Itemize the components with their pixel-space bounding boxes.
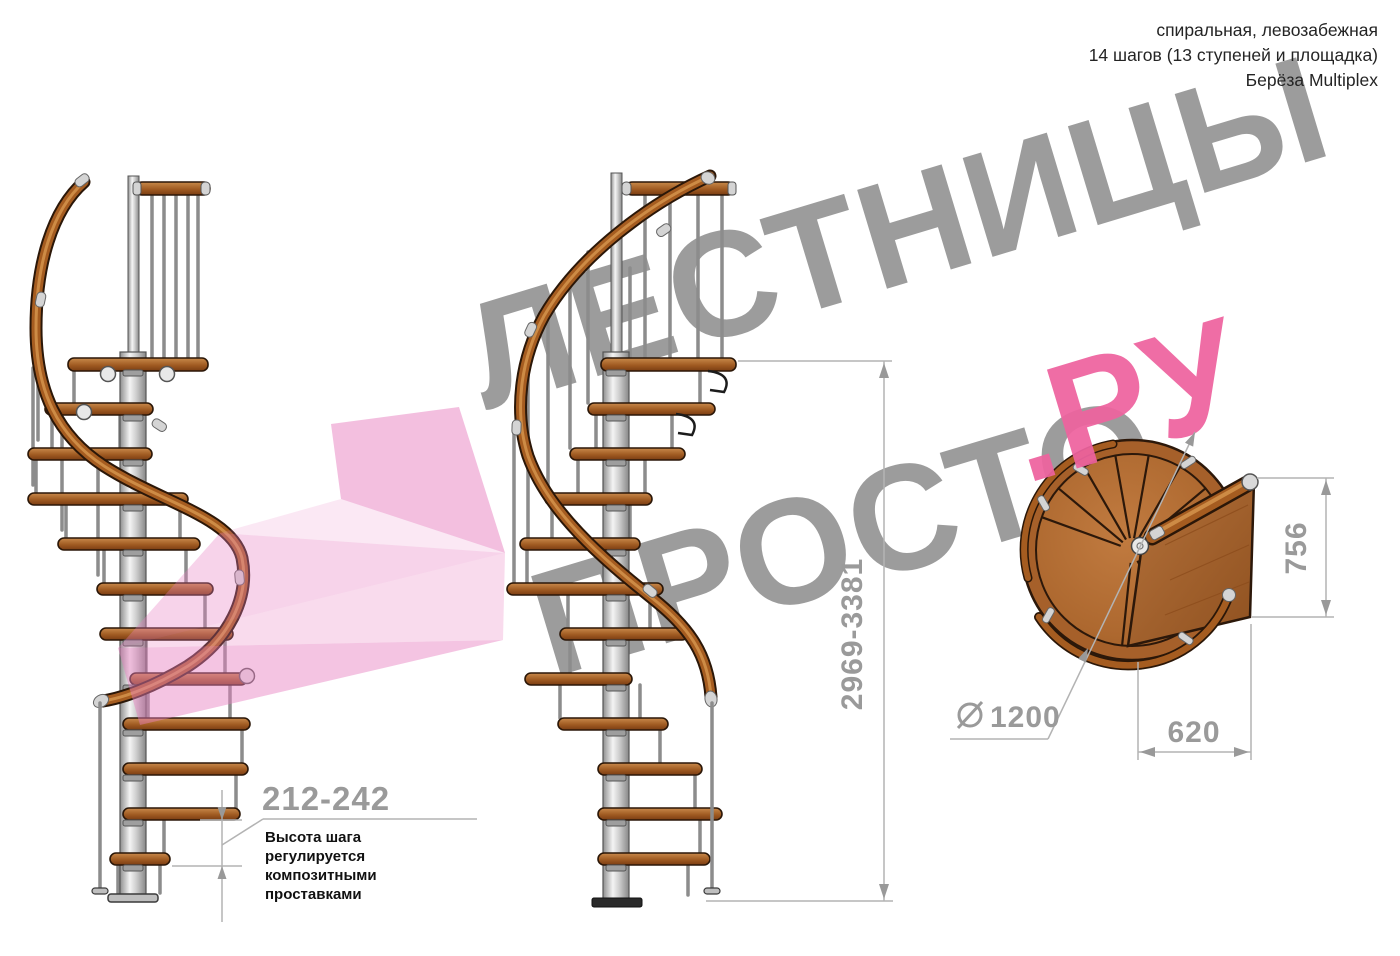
annotations-layer: 2969-3381 756 xyxy=(0,0,1400,956)
title-line-steps: 14 шагов (13 ступеней и площадка) xyxy=(1089,43,1378,68)
drawing-canvas: ЛЕСТНИЦЫ ПРОСТО xyxy=(0,0,1400,956)
dimension-diameter-lines xyxy=(950,432,1195,739)
dimension-width: 620 xyxy=(1167,716,1220,749)
diameter-icon xyxy=(958,702,982,728)
dimension-total-height: 2969-3381 xyxy=(836,558,869,710)
title-line-material: Берёза Multiplex xyxy=(1089,68,1378,93)
title-line-type: спиральная, левозабежная xyxy=(1089,18,1378,43)
dimension-depth: 756 xyxy=(1280,521,1313,574)
step-height-note: Высота шага регулируется композитными пр… xyxy=(265,828,377,904)
dimension-diameter-arrows xyxy=(1078,430,1199,662)
title-block: спиральная, левозабежная 14 шагов (13 ст… xyxy=(1089,18,1378,93)
watermark-arrow xyxy=(118,407,505,725)
dimension-diameter: 1200 xyxy=(990,701,1061,734)
step-height-value: 212-242 xyxy=(262,780,390,818)
